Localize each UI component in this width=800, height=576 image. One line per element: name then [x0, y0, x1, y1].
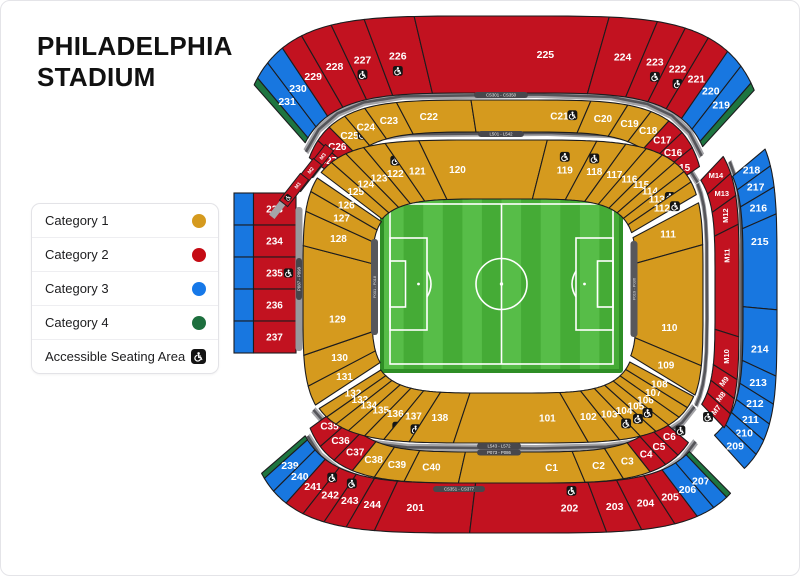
section-235[interactable]: 235: [254, 257, 297, 289]
section-label: 209: [726, 440, 744, 452]
legend-row-accessible: Accessible Seating Area: [32, 339, 218, 373]
section-label: 122: [387, 169, 404, 180]
section-label: 109: [658, 361, 675, 372]
soccer-field: [380, 195, 623, 373]
walkway-label-text: L501 - L542: [490, 132, 514, 137]
accessible-icon: [675, 426, 685, 436]
section-237[interactable]: 237: [254, 321, 297, 353]
section-left-strip[interactable]: [234, 289, 254, 321]
section-C1[interactable]: C1: [458, 451, 585, 483]
section-label: C40: [422, 463, 441, 474]
accessible-icon: [633, 414, 643, 424]
page-title-line2: STADIUM: [37, 62, 233, 93]
section-label: 220: [702, 86, 720, 98]
section-label: 234: [266, 237, 283, 248]
section-C21[interactable]: C21: [471, 100, 591, 133]
section-label: C1: [545, 463, 558, 474]
section-label: C4: [640, 450, 653, 461]
section-label: 214: [751, 344, 769, 356]
section-label: 235: [266, 269, 283, 280]
section-label: M14: [709, 171, 724, 180]
accessible-icon: [191, 349, 206, 364]
section-label: 226: [389, 51, 407, 63]
section-label: C38: [364, 455, 383, 466]
walkway-label-text: CS301 - CS350: [486, 93, 517, 98]
accessible-icon: [621, 418, 631, 428]
section-234[interactable]: 234: [254, 225, 297, 257]
section-label: 236: [266, 301, 283, 312]
legend-label: Category 1: [45, 213, 109, 228]
walkway-label-text: P087 - P098: [297, 266, 302, 290]
accessible-icon: [567, 110, 577, 120]
section-label: M10: [722, 349, 731, 364]
section-label: 225: [537, 49, 555, 61]
section-label: 128: [330, 234, 347, 245]
pitch-box-label: P019 - P036: [631, 277, 636, 300]
section-label: 127: [333, 214, 350, 225]
legend-row-category-1: Category 1: [32, 204, 218, 237]
section-label: 108: [651, 380, 668, 391]
section-label: C37: [346, 447, 365, 458]
section-label: 242: [321, 489, 339, 501]
legend-color-dot: [192, 282, 206, 296]
legend: Category 1Category 2Category 3Category 4…: [31, 203, 219, 374]
section-215[interactable]: 215: [742, 214, 777, 310]
section-left-strip[interactable]: [234, 257, 254, 289]
accessible-icon: [347, 479, 357, 489]
walkway-label: L501 - L542: [478, 131, 524, 137]
section-label: M13: [715, 189, 730, 198]
walkway-label: L543 - L572: [477, 443, 521, 449]
seat-map-page: PHILADELPHIA STADIUM Category 1Category …: [0, 0, 800, 576]
section-label: 243: [341, 495, 359, 507]
section-label: C24: [357, 122, 376, 133]
accessible-icon: [670, 201, 680, 211]
section-left-strip[interactable]: [234, 321, 254, 353]
section-label: 216: [750, 203, 768, 215]
section-label: 111: [660, 229, 676, 240]
section-label: 123: [371, 173, 388, 184]
section-label: 224: [614, 52, 632, 64]
page-title: PHILADELPHIA STADIUM: [37, 31, 233, 93]
walkway-label: P087 - P098: [296, 258, 302, 300]
section-225[interactable]: 225: [414, 16, 609, 94]
section-label: 102: [580, 412, 597, 423]
accessible-icon: [284, 268, 293, 277]
section-label: 131: [336, 372, 353, 383]
legend-row-category-3: Category 3: [32, 271, 218, 305]
section-label: 227: [354, 54, 372, 66]
accessible-icon: [567, 486, 577, 496]
accessible-icon: [327, 473, 337, 483]
section-label: 129: [329, 315, 346, 326]
section-label: 244: [364, 499, 382, 511]
section-label: 228: [326, 61, 344, 73]
section-M11[interactable]: M11: [714, 224, 739, 337]
accessible-icon: [358, 70, 368, 80]
legend-color-dot: [192, 316, 206, 330]
walkway-label-text: CS351 - CS377: [444, 487, 475, 492]
accessible-icon: [703, 412, 713, 422]
section-label: 204: [637, 497, 655, 509]
section-label: 119: [557, 165, 574, 176]
legend-label: Category 3: [45, 281, 109, 296]
section-label: 237: [266, 333, 283, 344]
section-label: 201: [407, 502, 425, 514]
legend-color-dot: [192, 248, 206, 262]
section-label: C39: [388, 460, 407, 471]
section-label: 101: [539, 413, 556, 424]
legend-color-dot: [192, 214, 206, 228]
section-label: C6: [663, 432, 676, 443]
section-label: C21: [550, 112, 569, 123]
section-label: 230: [289, 83, 307, 95]
section-label: 138: [432, 413, 449, 424]
legend-row-category-2: Category 2: [32, 237, 218, 271]
section-label: 202: [561, 502, 579, 514]
legend-label: Accessible Seating Area: [45, 349, 185, 364]
walkway-label: P073 - P086: [477, 450, 521, 456]
walkway-label-text: P073 - P086: [487, 450, 511, 455]
page-title-line1: PHILADELPHIA: [37, 31, 233, 62]
section-label: 203: [606, 501, 624, 513]
legend-label: Category 4: [45, 315, 109, 330]
section-label: C19: [620, 119, 639, 130]
section-label: 222: [669, 63, 687, 75]
section-label: M11: [723, 249, 732, 263]
section-label: 120: [449, 165, 466, 176]
walkway-label: CS351 - CS377: [433, 486, 485, 492]
section-label: 126: [338, 201, 355, 212]
pitch-box-label: P001 - P018: [372, 275, 377, 298]
section-236[interactable]: 236: [254, 289, 297, 321]
section-202[interactable]: 202: [470, 482, 607, 533]
section-label: 130: [331, 353, 348, 364]
section-label: 241: [304, 481, 322, 493]
section-left-strip[interactable]: [234, 193, 254, 225]
section-label: 217: [747, 181, 765, 193]
section-label: C3: [621, 456, 634, 467]
section-label: 110: [661, 323, 678, 334]
section-label: C20: [594, 114, 613, 125]
section-label: 205: [661, 491, 679, 503]
section-label: 215: [751, 236, 769, 248]
section-label: 118: [586, 167, 603, 178]
section-label: 112: [654, 204, 671, 215]
accessible-icon: [643, 408, 653, 418]
section-label: 213: [749, 377, 767, 389]
accessible-icon: [589, 154, 599, 164]
section-label: 221: [688, 73, 706, 85]
accessible-icon: [393, 66, 403, 76]
accessible-icon: [560, 152, 570, 162]
section-label: 121: [409, 167, 426, 178]
legend-label: Category 2: [45, 247, 109, 262]
section-label: C2: [592, 461, 605, 472]
section-label: 137: [405, 412, 422, 423]
section-left-strip[interactable]: [234, 225, 254, 257]
section-label: C23: [380, 116, 399, 127]
section-label: C36: [331, 436, 350, 447]
walkway-label-text: L543 - L572: [488, 444, 512, 449]
walkway-label: CS301 - CS350: [474, 92, 528, 98]
section-label: C22: [420, 112, 439, 123]
section-label: M12: [721, 208, 730, 223]
section-label: C5: [653, 442, 666, 453]
section-label: 229: [304, 71, 322, 83]
section-label: 223: [646, 56, 664, 68]
legend-row-category-4: Category 4: [32, 305, 218, 339]
